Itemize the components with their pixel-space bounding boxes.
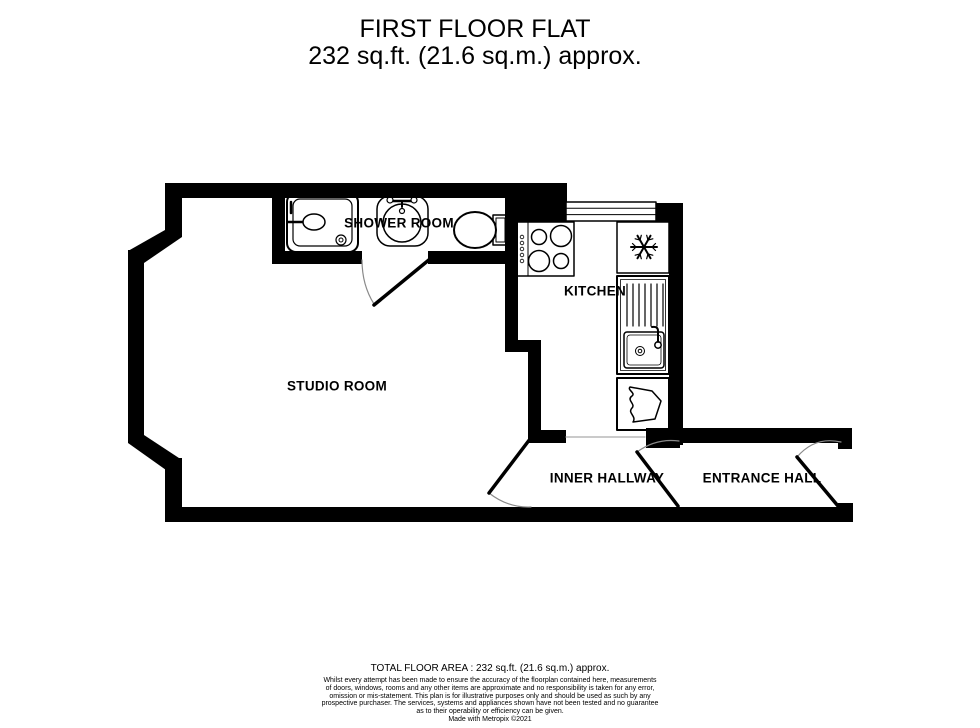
floor-plan: [0, 0, 980, 728]
room-label-kitchen: KITCHEN: [564, 284, 626, 299]
floorplan-page: FIRST FLOOR FLAT 232 sq.ft. (21.6 sq.m.)…: [0, 0, 980, 728]
fridge-freezer-icon: [617, 222, 669, 273]
studio-hallway-door: [489, 439, 531, 507]
room-label-shower-room: SHOWER ROOM: [344, 216, 454, 231]
hob-icon: [516, 222, 574, 276]
footer-block: TOTAL FLOOR AREA : 232 sq.ft. (21.6 sq.m…: [0, 663, 980, 724]
kitchen-window-icon: [566, 202, 656, 221]
room-label-entrance-hall: ENTRANCE HALL: [703, 471, 822, 486]
toilet-icon: [454, 212, 508, 248]
total-floor-area: TOTAL FLOOR AREA : 232 sq.ft. (21.6 sq.m…: [0, 663, 980, 675]
kitchen-unit-icon: [617, 378, 669, 430]
metropix-credit: Made with Metropix ©2021: [0, 716, 980, 724]
room-label-inner-hallway: INNER HALLWAY: [550, 471, 664, 486]
room-label-studio-room: STUDIO ROOM: [287, 379, 387, 394]
disclaimer-text: Whilst every attempt has been made to en…: [0, 677, 980, 716]
shower-room-door: [362, 259, 430, 305]
